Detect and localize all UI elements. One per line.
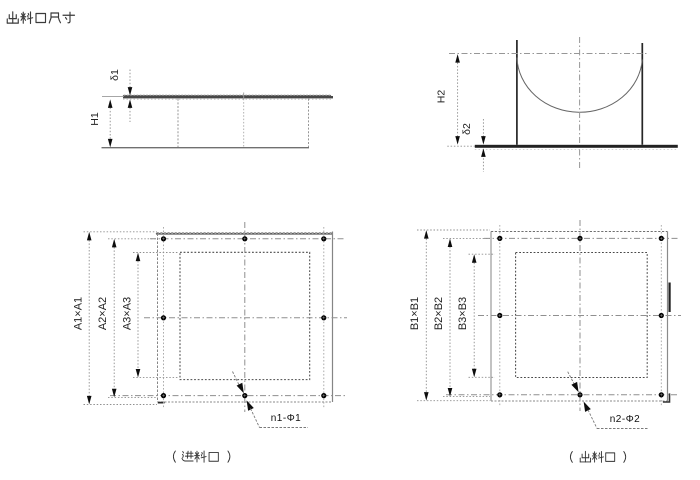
svg-text:n2-Φ2: n2-Φ2 — [610, 414, 641, 425]
svg-text:n1-Φ1: n1-Φ1 — [271, 413, 302, 424]
svg-text:B1×B1: B1×B1 — [409, 297, 421, 330]
svg-text:B3×B3: B3×B3 — [457, 297, 469, 330]
svg-text:B2×B2: B2×B2 — [433, 297, 445, 330]
svg-text:δ1: δ1 — [109, 69, 121, 81]
svg-text:A2×A2: A2×A2 — [97, 297, 109, 330]
svg-text:A1×A1: A1×A1 — [73, 297, 85, 330]
svg-text:A3×A3: A3×A3 — [121, 297, 133, 330]
svg-text:H1: H1 — [89, 112, 101, 126]
svg-text:δ2: δ2 — [461, 123, 473, 135]
svg-text:H2: H2 — [436, 90, 448, 104]
